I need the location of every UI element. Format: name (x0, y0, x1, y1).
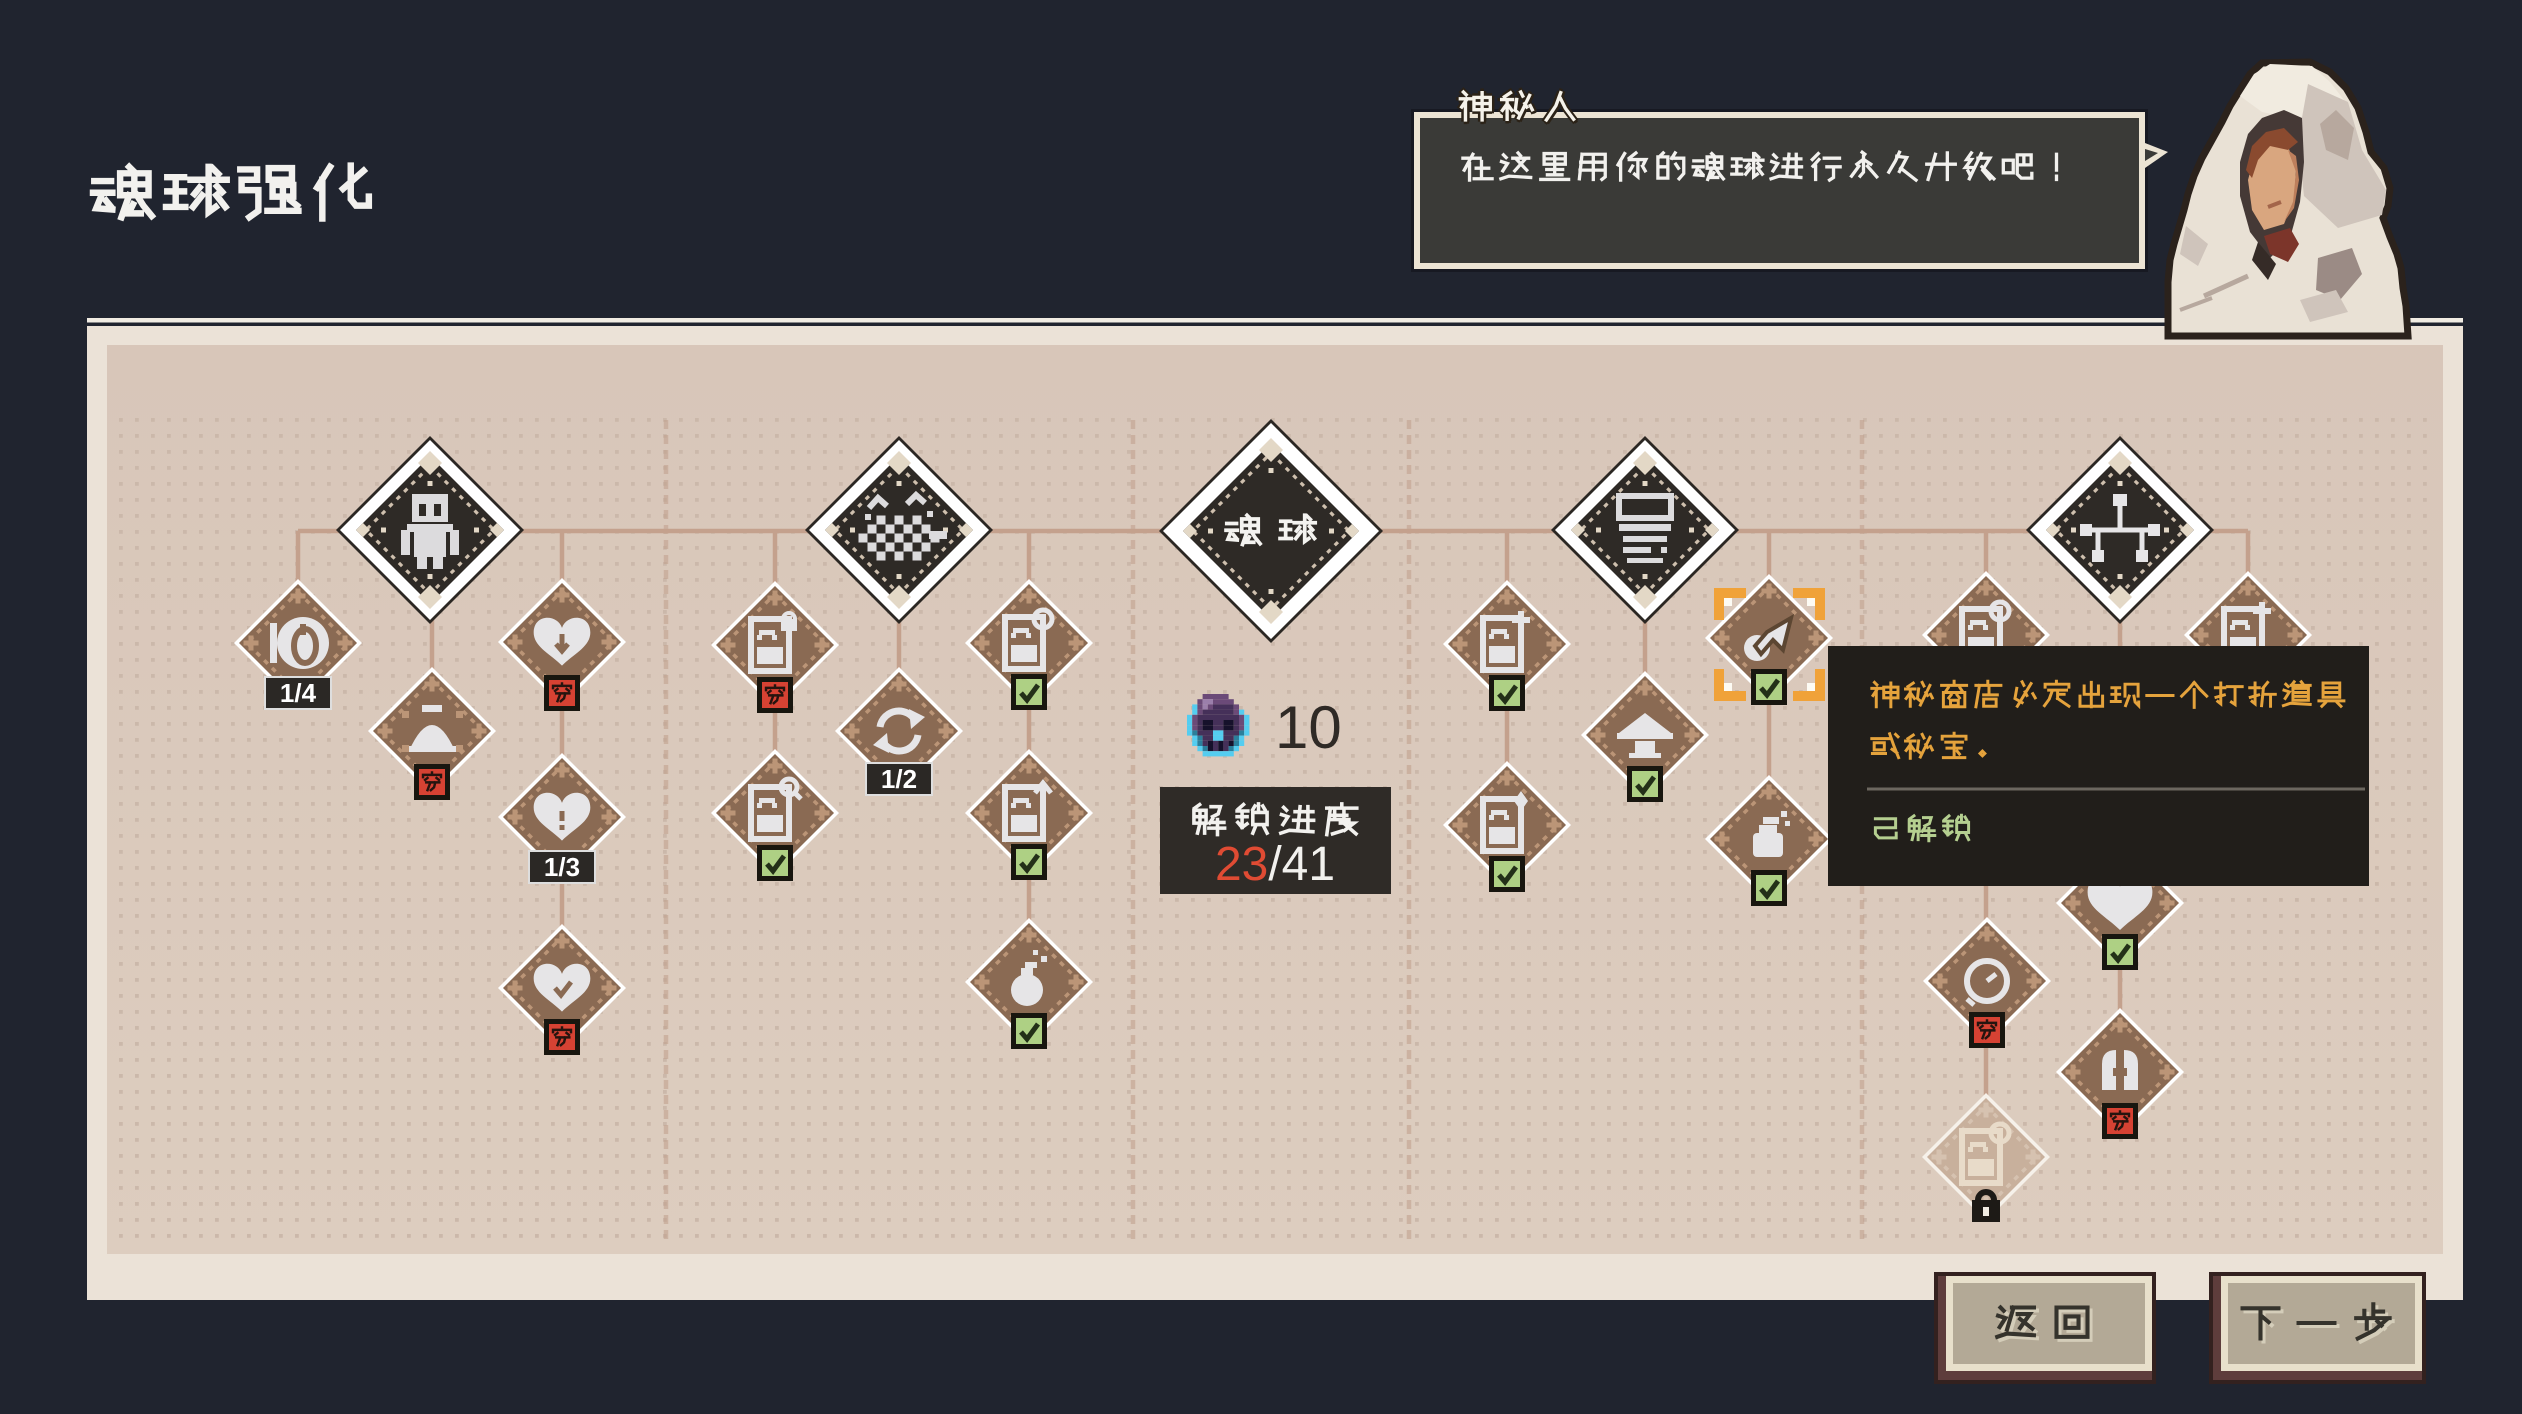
svg-text:10: 10 (1275, 694, 1342, 761)
svg-text:1/4: 1/4 (280, 678, 317, 708)
svg-text:23/41: 23/41 (1215, 838, 1335, 891)
svg-text:1/2: 1/2 (881, 764, 917, 794)
svg-text:1/3: 1/3 (544, 852, 580, 882)
